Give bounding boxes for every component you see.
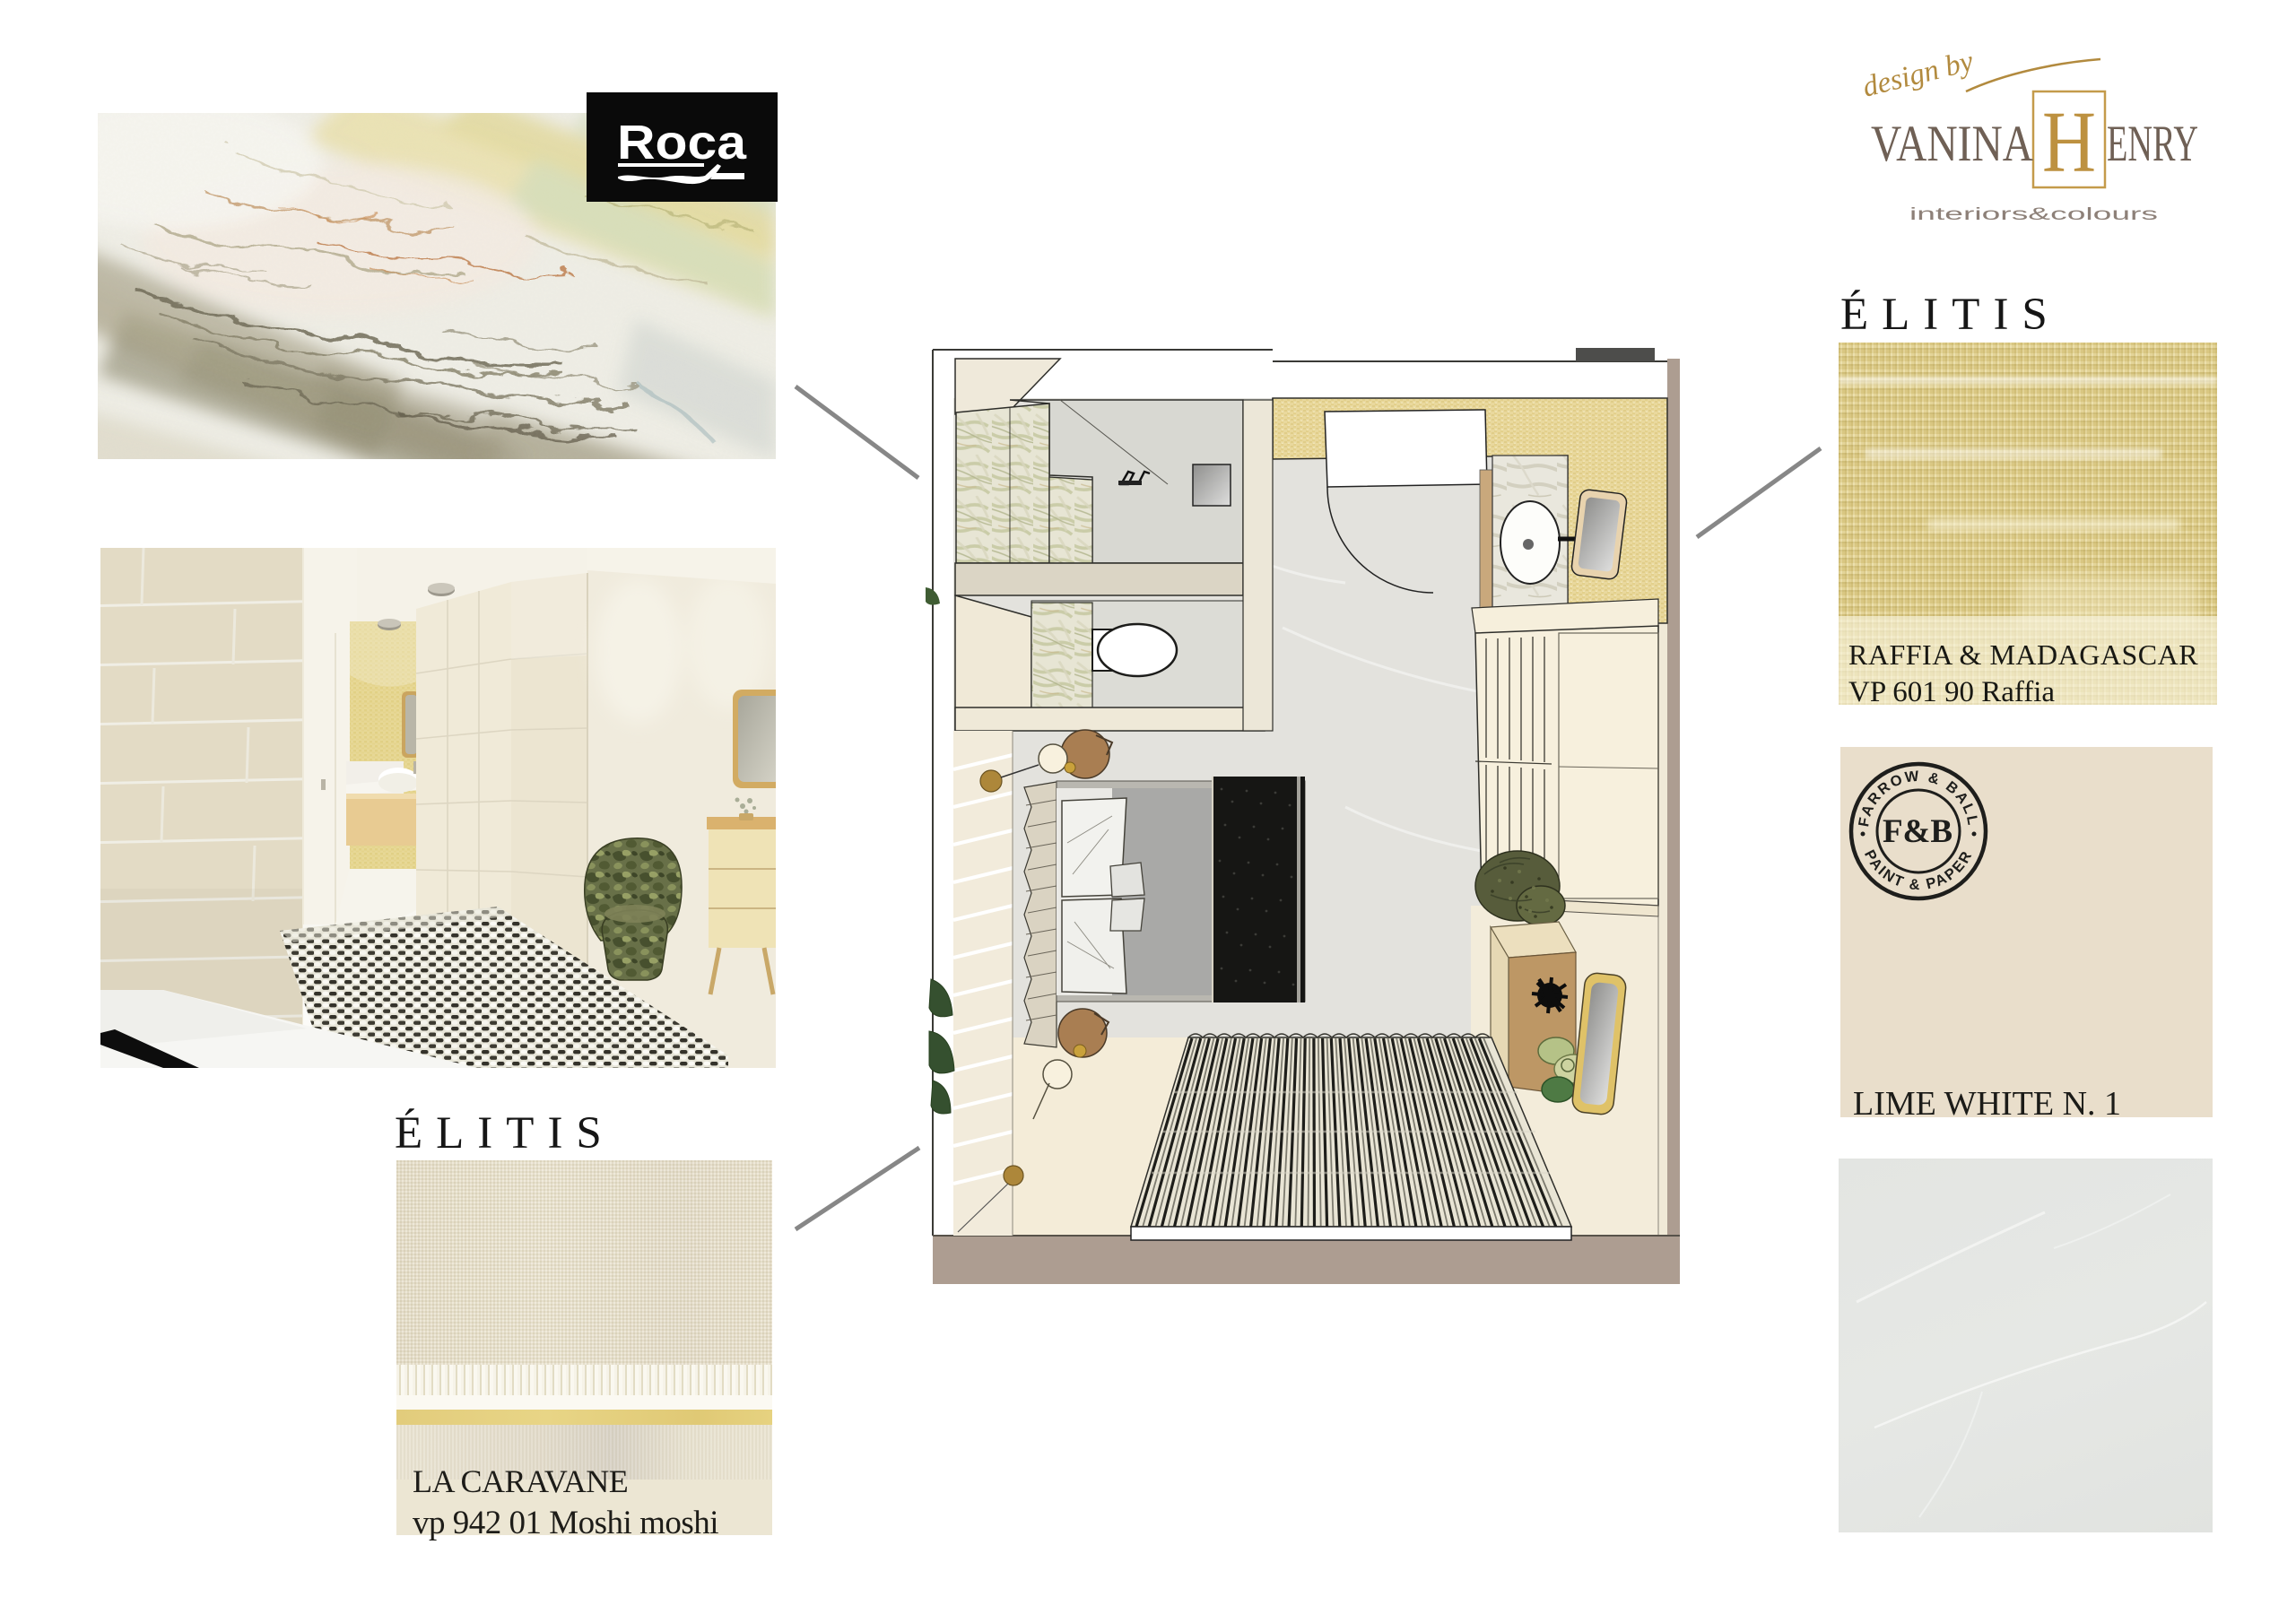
svg-text:Roca: Roca (617, 116, 747, 169)
svg-text:VANINA: VANINA (1871, 116, 2033, 172)
svg-text:F&B: F&B (1883, 813, 1952, 850)
svg-text:ENRY: ENRY (2107, 116, 2198, 172)
svg-text:H: H (2042, 94, 2096, 190)
svg-text:interiors&colours: interiors&colours (1909, 205, 2158, 224)
svg-text:design by: design by (1859, 45, 1977, 103)
